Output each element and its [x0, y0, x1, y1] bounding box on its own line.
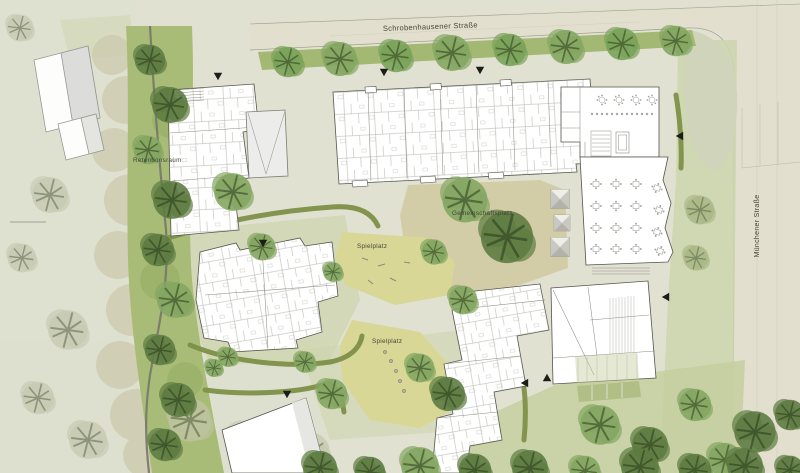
label-playground-upper: Spielplatz [357, 243, 387, 250]
label-playground-lower: Spielplatz [372, 338, 402, 345]
label-street-right: Münchener Straße [754, 195, 761, 258]
residential-building-north [333, 79, 596, 187]
label-community-plaza: Gemeinschaftsplatz [452, 210, 513, 217]
site-plan-svg: Schrobenhausener Straße Münchener Straße… [0, 0, 800, 473]
stair-elevator [591, 131, 629, 156]
gable-roof-annex [246, 110, 288, 178]
label-retention-area: Retentionsraum [133, 157, 182, 164]
site-plan: Schrobenhausener Straße Münchener Straße… [0, 0, 800, 473]
